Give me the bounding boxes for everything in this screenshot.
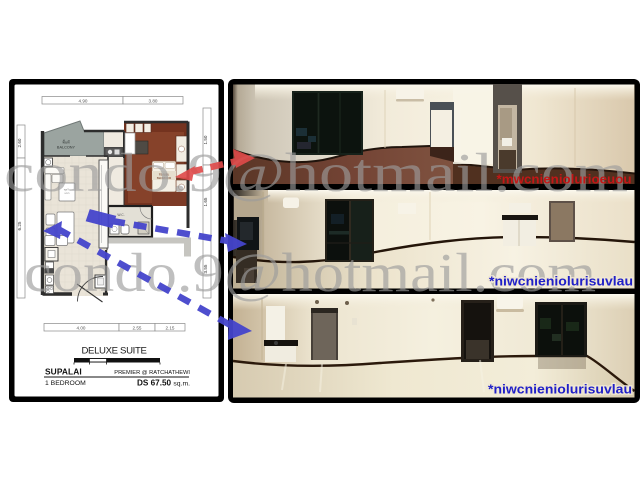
svg-text:2.55: 2.55 <box>133 325 142 330</box>
svg-text:*mwcnieniolurioeuou: *mwcnieniolurioeuou <box>497 173 632 187</box>
svg-text:DS 67.50 sq.m.: DS 67.50 sq.m. <box>137 378 190 387</box>
svg-text:W.C.: W.C. <box>117 213 124 217</box>
svg-text:3.80: 3.80 <box>149 98 158 103</box>
svg-text:*niwcnieniolurisuvlau: *niwcnieniolurisuvlau <box>489 274 633 289</box>
svg-text:4.90: 4.90 <box>79 98 88 103</box>
svg-text:DELUXE SUITE: DELUXE SUITE <box>81 346 146 357</box>
svg-text:condo.9@hotmail.com: condo.9@hotmail.com <box>24 242 596 303</box>
svg-text:6.25: 6.25 <box>17 221 22 230</box>
svg-text:PREMIER @ RATCHATHEWI: PREMIER @ RATCHATHEWI <box>114 370 190 376</box>
svg-text:SUPALAI: SUPALAI <box>45 367 82 377</box>
svg-text:2.15: 2.15 <box>166 325 175 330</box>
svg-text:1 BEDROOM: 1 BEDROOM <box>45 380 86 387</box>
svg-text:*niwcnieniolurisuvlau: *niwcnieniolurisuvlau <box>488 382 632 397</box>
svg-text:4.00: 4.00 <box>77 325 86 330</box>
